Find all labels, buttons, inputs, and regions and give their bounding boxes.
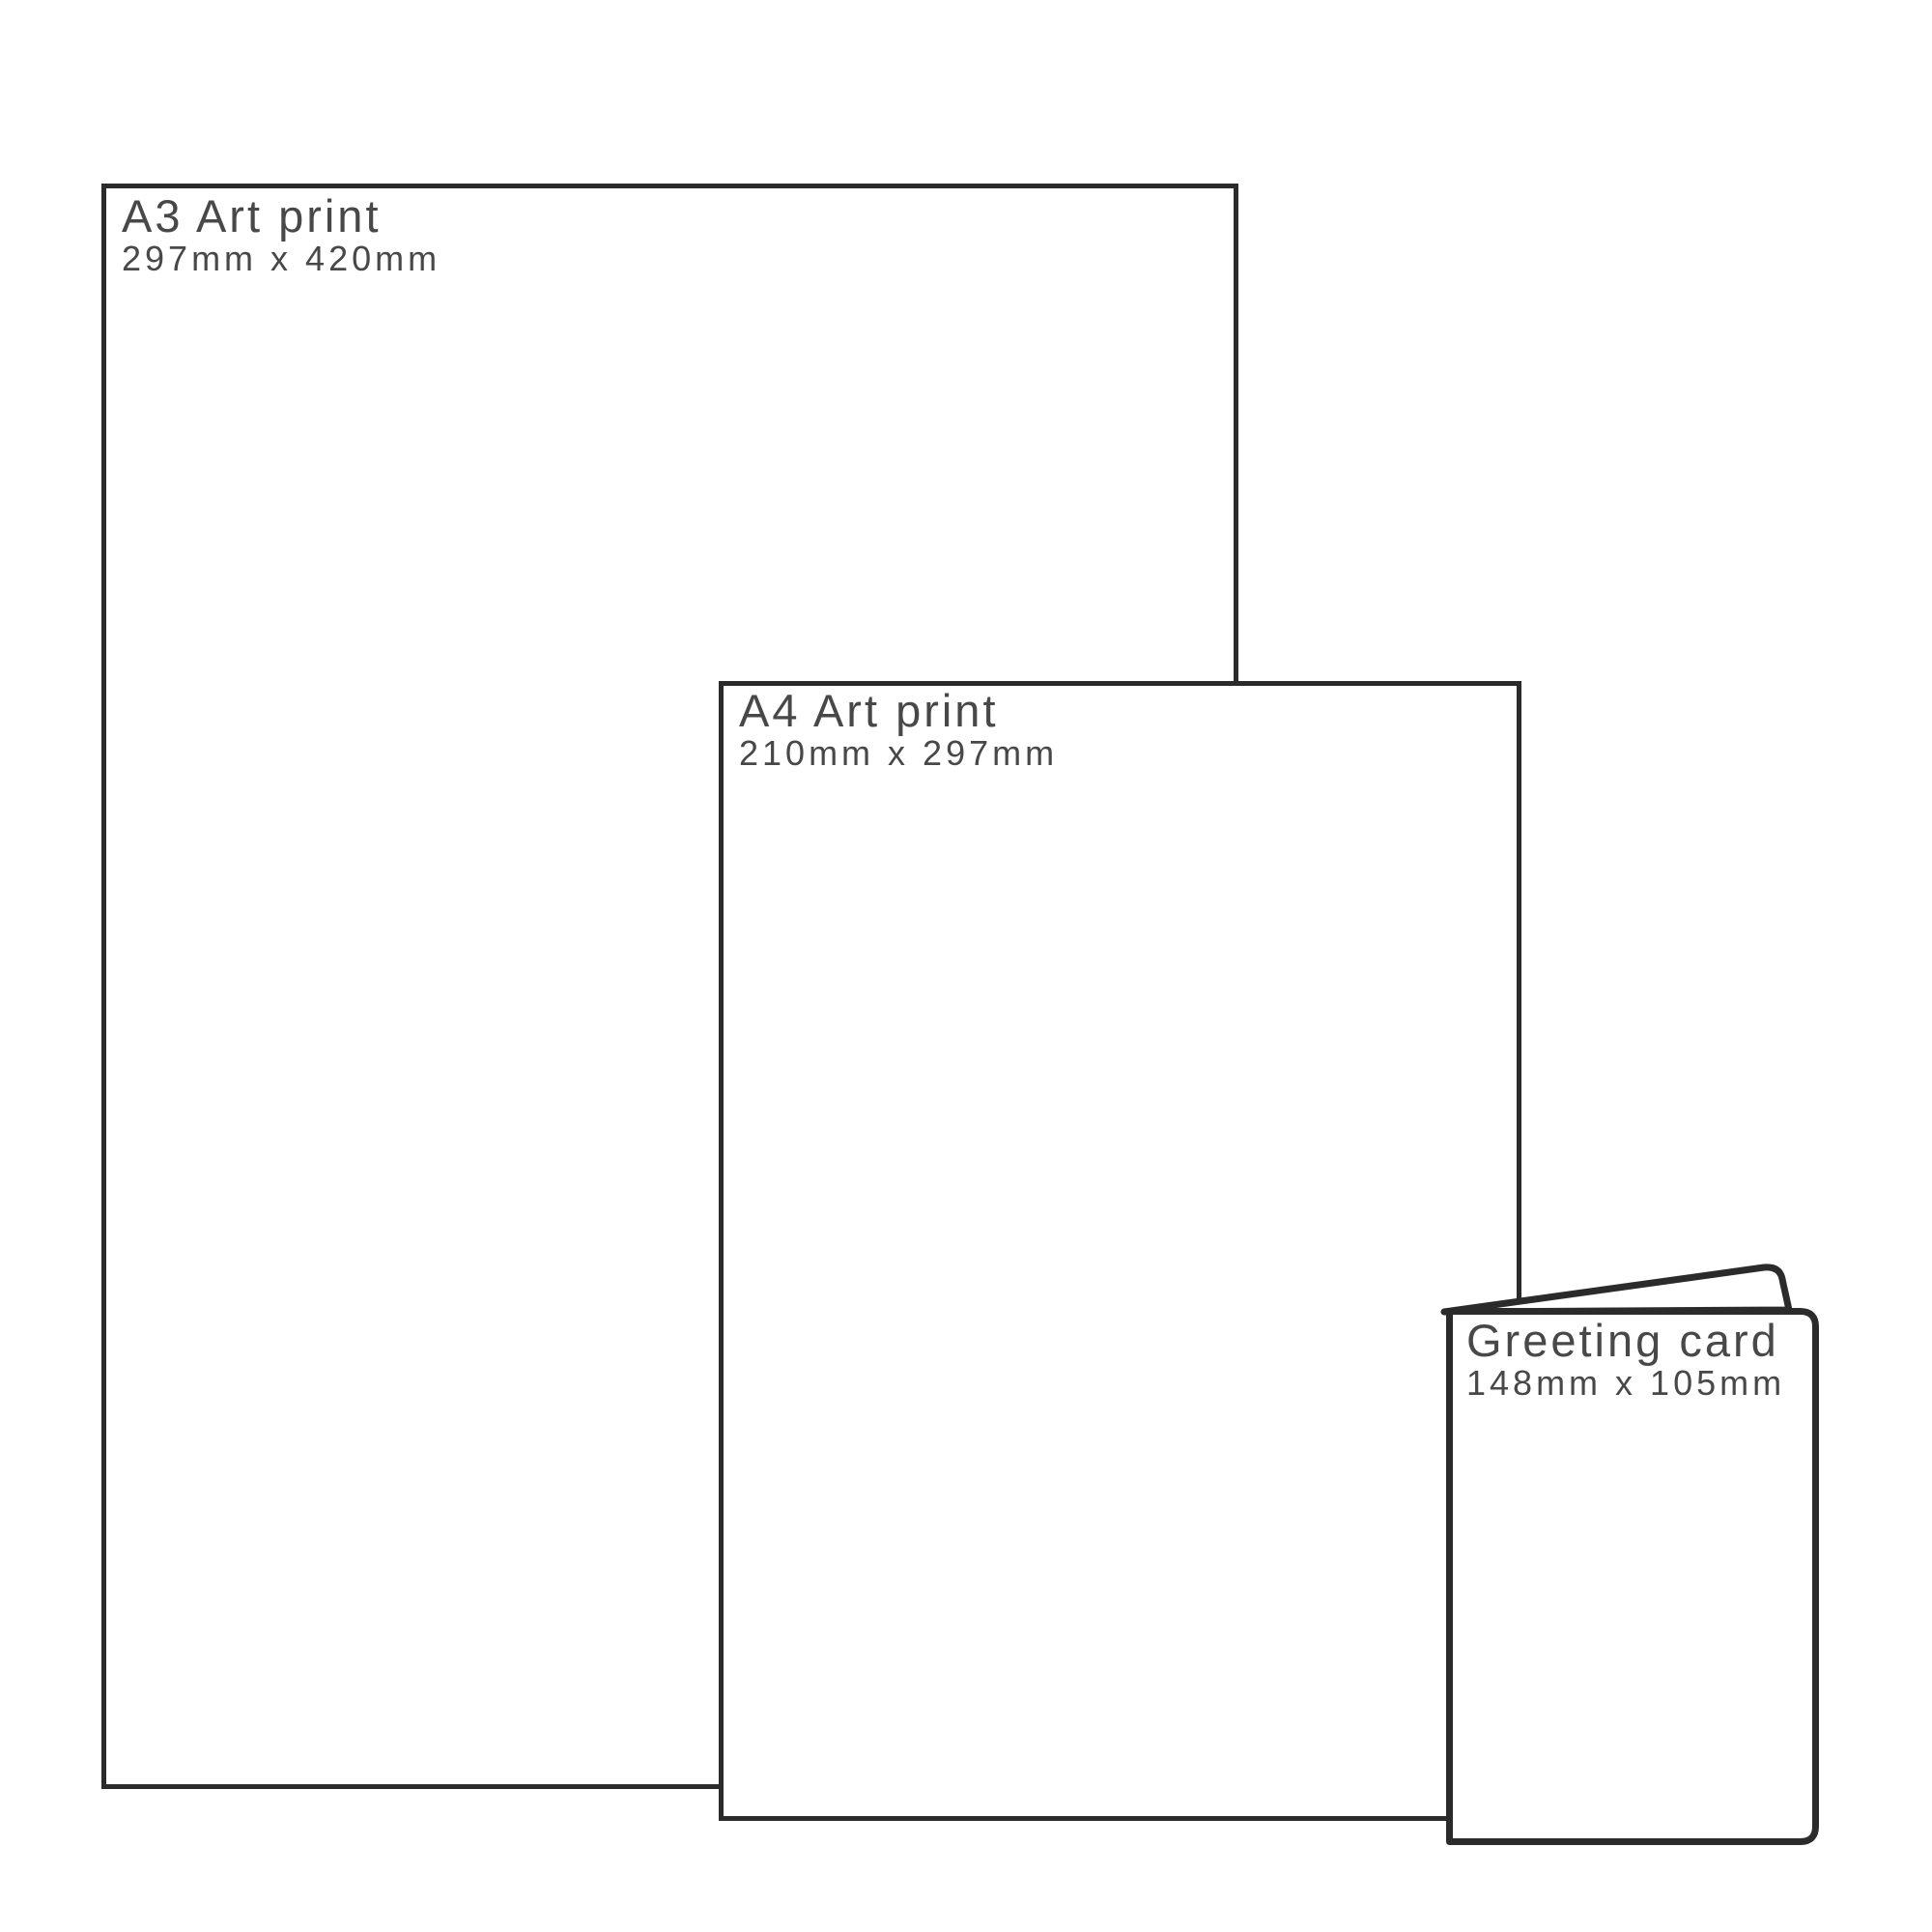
- greeting-card-front: [1450, 1312, 1816, 1842]
- diagram-canvas: [0, 0, 1932, 1932]
- a4-print-outline: [722, 684, 1520, 1819]
- size-comparison-diagram: A3 Art print 297mm x 420mm A4 Art print …: [0, 0, 1932, 1932]
